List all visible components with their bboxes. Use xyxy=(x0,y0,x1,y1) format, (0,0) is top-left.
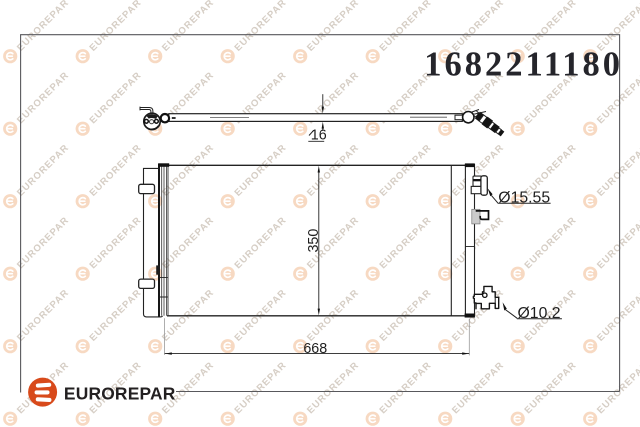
svg-text:EUROREPAR: EUROREPAR xyxy=(88,142,144,198)
svg-text:Ø10.2: Ø10.2 xyxy=(518,305,561,322)
svg-text:EUROREPAR: EUROREPAR xyxy=(595,215,640,271)
svg-text:EUROREPAR: EUROREPAR xyxy=(160,215,216,271)
svg-text:EUROREPAR: EUROREPAR xyxy=(233,0,289,54)
svg-text:EUROREPAR: EUROREPAR xyxy=(15,70,71,126)
svg-text:EUROREPAR: EUROREPAR xyxy=(15,142,71,198)
svg-text:EUROREPAR: EUROREPAR xyxy=(88,70,144,126)
svg-text:EUROREPAR: EUROREPAR xyxy=(378,142,434,198)
svg-text:668: 668 xyxy=(303,341,327,357)
svg-text:EUROREPAR: EUROREPAR xyxy=(305,0,361,54)
svg-text:EUROREPAR: EUROREPAR xyxy=(15,287,71,343)
svg-text:EUROREPAR: EUROREPAR xyxy=(88,0,144,54)
svg-text:EUROREPAR: EUROREPAR xyxy=(595,360,640,416)
svg-text:EUROREPAR: EUROREPAR xyxy=(160,142,216,198)
svg-text:1682211180: 1682211180 xyxy=(424,46,623,84)
svg-text:EUROREPAR: EUROREPAR xyxy=(378,360,434,416)
svg-text:EUROREPAR: EUROREPAR xyxy=(595,287,640,343)
svg-text:EUROREPAR: EUROREPAR xyxy=(305,142,361,198)
svg-text:EUROREPAR: EUROREPAR xyxy=(305,360,361,416)
svg-text:EUROREPAR: EUROREPAR xyxy=(233,360,289,416)
svg-text:EUROREPAR: EUROREPAR xyxy=(64,384,176,404)
svg-text:Ø15.55: Ø15.55 xyxy=(498,189,550,206)
svg-text:EUROREPAR: EUROREPAR xyxy=(233,215,289,271)
svg-text:EUROREPAR: EUROREPAR xyxy=(160,0,216,54)
svg-text:EUROREPAR: EUROREPAR xyxy=(88,287,144,343)
svg-text:EUROREPAR: EUROREPAR xyxy=(378,215,434,271)
svg-text:EUROREPAR: EUROREPAR xyxy=(15,0,71,54)
svg-text:EUROREPAR: EUROREPAR xyxy=(88,215,144,271)
svg-text:EUROREPAR: EUROREPAR xyxy=(15,215,71,271)
svg-text:EUROREPAR: EUROREPAR xyxy=(523,360,579,416)
svg-text:350: 350 xyxy=(306,229,322,253)
svg-text:EUROREPAR: EUROREPAR xyxy=(523,215,579,271)
svg-text:EUROREPAR: EUROREPAR xyxy=(595,142,640,198)
svg-text:EUROREPAR: EUROREPAR xyxy=(233,142,289,198)
svg-text:EUROREPAR: EUROREPAR xyxy=(450,360,506,416)
